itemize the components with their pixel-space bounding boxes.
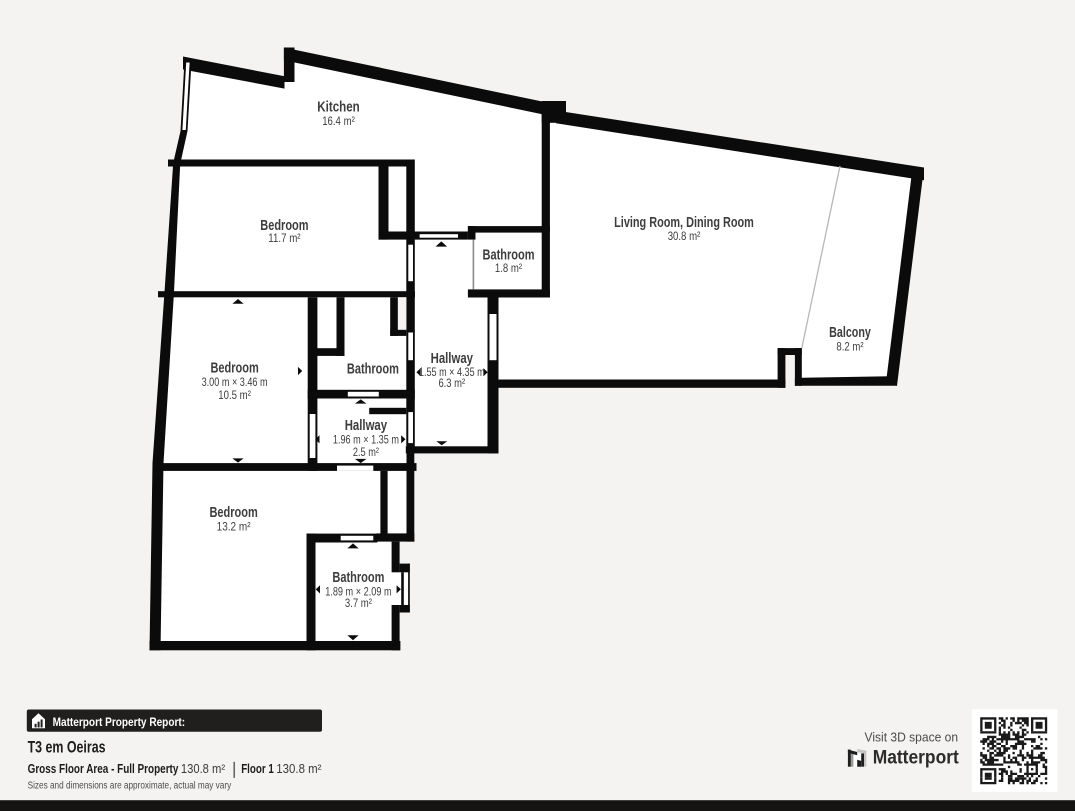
svg-text:Gross Floor Area - Full Proper: Gross Floor Area - Full Property xyxy=(28,761,179,776)
svg-text:3.7 m²: 3.7 m² xyxy=(345,596,372,610)
svg-text:10.5 m²: 10.5 m² xyxy=(218,388,251,402)
svg-text:3.00 m × 3.46 m: 3.00 m × 3.46 m xyxy=(202,375,268,389)
svg-text:13.2 m²: 13.2 m² xyxy=(217,520,251,534)
svg-text:T3 em Oeiras: T3 em Oeiras xyxy=(28,738,106,757)
svg-text:8.2 m²: 8.2 m² xyxy=(836,339,863,353)
svg-text:30.8 m²: 30.8 m² xyxy=(668,229,701,243)
svg-text:Visit 3D space on: Visit 3D space on xyxy=(865,729,959,744)
svg-text:Matterport Property Report:: Matterport Property Report: xyxy=(53,717,186,729)
svg-text:Bedroom: Bedroom xyxy=(209,505,257,521)
svg-text:Hallway: Hallway xyxy=(345,418,387,434)
svg-text:2.5 m²: 2.5 m² xyxy=(353,445,379,459)
svg-text:11.7 m²: 11.7 m² xyxy=(268,231,300,245)
svg-text:Bathroom: Bathroom xyxy=(347,362,399,378)
svg-text:Floor 1: Floor 1 xyxy=(241,761,274,776)
svg-text:1.8 m²: 1.8 m² xyxy=(495,261,522,275)
svg-text:Sizes and dimensions are appro: Sizes and dimensions are approximate, ac… xyxy=(28,781,232,792)
svg-text:Matterport: Matterport xyxy=(873,746,960,768)
svg-text:130.8 m²: 130.8 m² xyxy=(181,761,226,776)
svg-text:130.8 m²: 130.8 m² xyxy=(276,761,322,776)
svg-text:16.4 m²: 16.4 m² xyxy=(322,114,355,128)
svg-text:6.3 m²: 6.3 m² xyxy=(438,376,465,390)
